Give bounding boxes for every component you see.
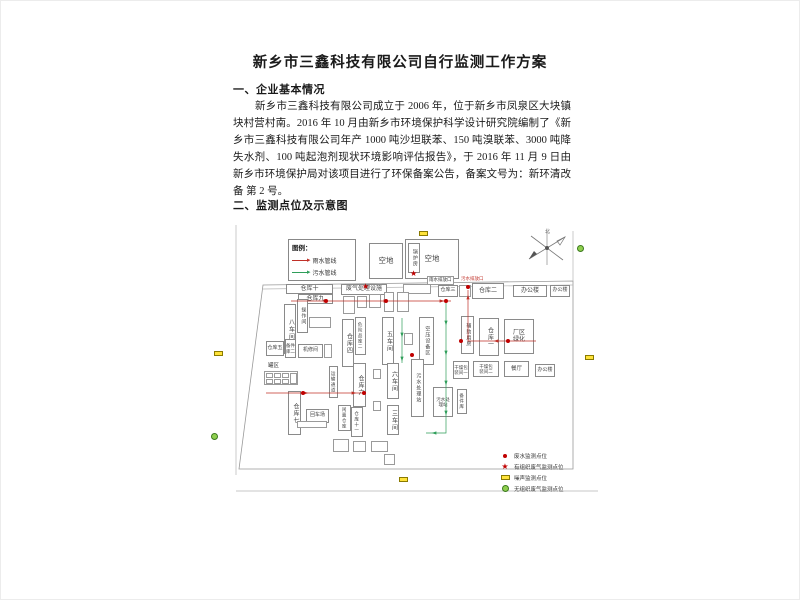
stack-gas-point-marker: ★ [410,270,417,278]
page-title: 新乡市三鑫科技有限公司自行监测工作方案 [1,51,799,72]
point-legend-label: 有组织废气监测点位 [514,463,564,471]
pipe-arrow-icon: ▸ [307,257,311,264]
small-structure-box [266,373,273,378]
wastewater-point-marker [362,391,366,395]
small-structure-box [274,373,281,378]
pipe-legend: 图例： ▸雨水管线▸污水管线 [288,239,356,281]
fugitive-gas-point-marker [577,245,584,252]
building-box: 六车间 [387,363,399,399]
building-box: 空压设备区 [419,317,434,365]
wastewater-point-marker-icon [499,454,511,458]
noise-point-marker-icon [499,475,511,480]
small-structure-box [369,294,381,308]
building-box: 办公楼 [550,285,570,297]
point-legend-label: 无组织废气监测点位 [514,485,564,493]
building-box: 干燥包 装间一 [453,361,469,379]
building-box: 仓库十 [286,284,333,294]
building-box: 污水处 理站 [433,387,453,417]
stack-gas-point-marker-icon: ★ [499,463,511,471]
small-structure-box [282,373,289,378]
pipe-sample-line [292,260,308,261]
area-label: 雨水排放口 [427,276,454,285]
section1-heading: 一、企业基本情况 [233,81,325,97]
small-structure-box [297,421,327,428]
fugitive-gas-point-marker-icon [499,485,511,492]
monitoring-point-legend: 废水监测点位★有组织废气监测点位噪声监测点位无组织废气监测点位 [499,450,564,494]
building-box: 办公楼 [535,364,555,377]
point-legend-label: 噪声监测点位 [514,474,547,482]
building-box: 仓库六 [353,363,366,407]
building-box: 办公楼 [513,285,547,297]
point-legend-label: 废水监测点位 [514,452,547,460]
building-box: 仓库三 [438,285,458,297]
wastewater-point-marker [459,339,463,343]
section2-heading: 二、监测点位及示意图 [233,197,348,213]
small-structure-box [274,379,281,384]
building-box: 危险品库二 [355,317,366,355]
small-structure-box [353,441,366,452]
building-box: 五车间 [382,317,394,365]
point-legend-row: 无组织废气监测点位 [499,483,564,494]
svg-text:北: 北 [545,228,550,235]
wastewater-point-marker [324,299,328,303]
area-label: 罐区 [268,364,279,370]
building-box: 仓库一 [479,318,499,356]
building-box: 干燥包 装间二 [473,361,499,377]
small-structure-box [324,344,332,358]
wastewater-point-marker [410,353,414,357]
building-box: 三车间 [387,405,399,435]
compass-icon: 北 [521,227,573,267]
pipe-legend-label: 污水管线 [313,268,337,277]
building-box: 操作间 [297,299,308,333]
wastewater-point-marker [384,299,388,303]
building-box: 仓库七 [288,391,301,435]
wastewater-point-marker [506,339,510,343]
pipe-sample-line [292,272,308,273]
site-plan-diagram: 图例： ▸雨水管线▸污水管线 废水监测点位★有组织废气监测点位噪声监测点位无组织… [206,223,604,515]
document-page: 新乡市三鑫科技有限公司自行监测工作方案 一、企业基本情况 新乡市三鑫科技有限公司… [0,0,800,600]
small-structure-box [343,296,355,314]
small-structure-box [404,333,413,345]
building-box: 仓库十一 [351,407,363,437]
pipe-legend-title: 图例： [292,242,352,252]
pipe-legend-label: 雨水管线 [313,256,337,265]
point-legend-row: ★有组织废气监测点位 [499,461,564,472]
small-structure-box [397,292,409,312]
building-box: 仓库四 [342,319,354,367]
small-structure-box [266,379,273,384]
small-structure-box [373,369,381,379]
pipe-legend-row: ▸污水管线 [292,266,352,278]
point-legend-row: 废水监测点位 [499,450,564,461]
small-structure-box [371,441,388,452]
small-structure-box [333,439,349,452]
building-box: 空地 [369,243,403,279]
small-structure-box [309,317,331,328]
wastewater-point-marker [301,391,305,395]
building-box: 厂区 绿化 [504,319,534,354]
building-box: 闲置仓库 [338,405,351,431]
building-box: 运输通道 [329,366,338,398]
building-box: 餐厅 [504,361,529,377]
wastewater-point-marker [466,285,470,289]
building-box: 污水处理站 [411,359,424,417]
stack-gas-point-marker: ★ [362,283,369,291]
building-box: 仓库二 [472,283,504,299]
noise-point-marker [585,355,594,360]
noise-point-marker [399,477,408,482]
fugitive-gas-point-marker [211,433,218,440]
building-box: 机修间 [298,344,323,358]
area-label: 污水排放口 [461,277,484,282]
small-structure-box [290,373,297,384]
small-structure-box [357,296,367,308]
wastewater-point-marker [444,299,448,303]
pipe-arrow-icon: ▸ [307,269,311,276]
pipe-legend-row: ▸雨水管线 [292,254,352,266]
building-box: 备件库 [457,389,467,414]
building-box: 仓库五 [266,341,284,356]
point-legend-row: 噪声监测点位 [499,472,564,483]
building-box: 辅助用房 [461,316,474,354]
section1-paragraph: 新乡市三鑫科技有限公司成立于 2006 年，位于新乡市凤泉区大块镇块村营村南。2… [233,98,571,200]
small-structure-box [373,401,381,411]
small-structure-box [384,454,395,465]
small-structure-box [282,379,289,384]
noise-point-marker [214,351,223,356]
noise-point-marker [419,231,428,236]
building-box: 备件 库二 [285,339,296,358]
